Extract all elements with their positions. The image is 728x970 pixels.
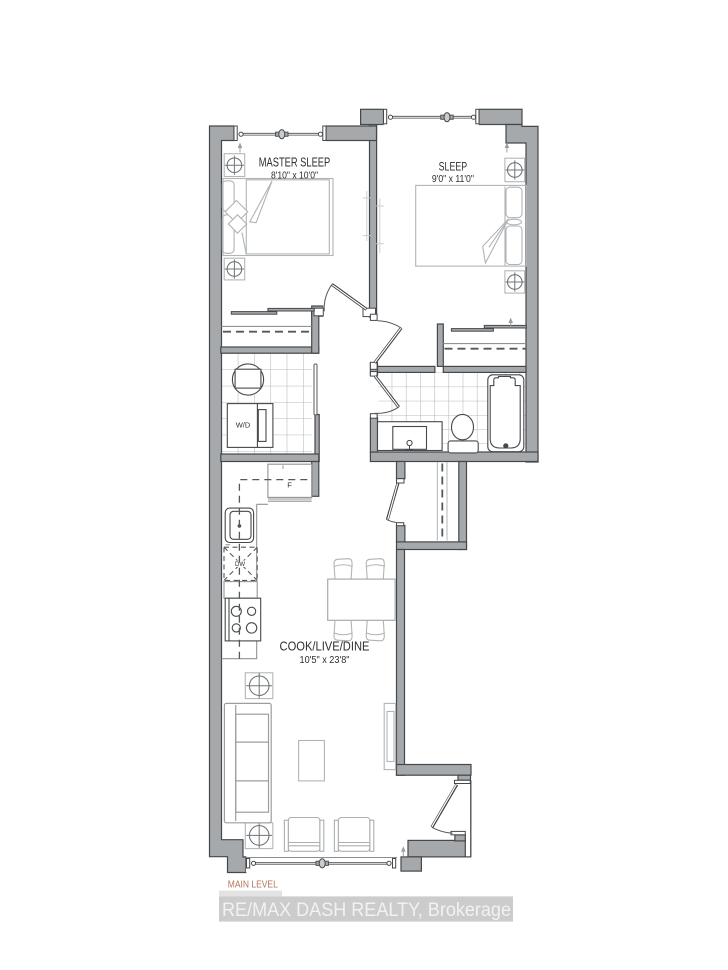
svg-text:RE/MAX DASH REALTY, Brokerage: RE/MAX DASH REALTY, Brokerage (222, 899, 511, 921)
svg-text:W/D: W/D (236, 421, 251, 430)
svg-text:COOK/LIVE/DINE: COOK/LIVE/DINE (280, 640, 370, 654)
svg-text:10'5" x 23'8": 10'5" x 23'8" (300, 655, 350, 666)
svg-text:MAIN LEVEL: MAIN LEVEL (228, 880, 278, 891)
svg-text:F: F (287, 481, 292, 490)
svg-text:SLEEP: SLEEP (439, 162, 468, 174)
svg-text:DW: DW (235, 562, 245, 568)
svg-text:8'10" x 10'0": 8'10" x 10'0" (271, 171, 318, 182)
svg-text:9'0" x 11'0": 9'0" x 11'0" (432, 174, 474, 185)
svg-text:MASTER SLEEP: MASTER SLEEP (259, 156, 331, 170)
